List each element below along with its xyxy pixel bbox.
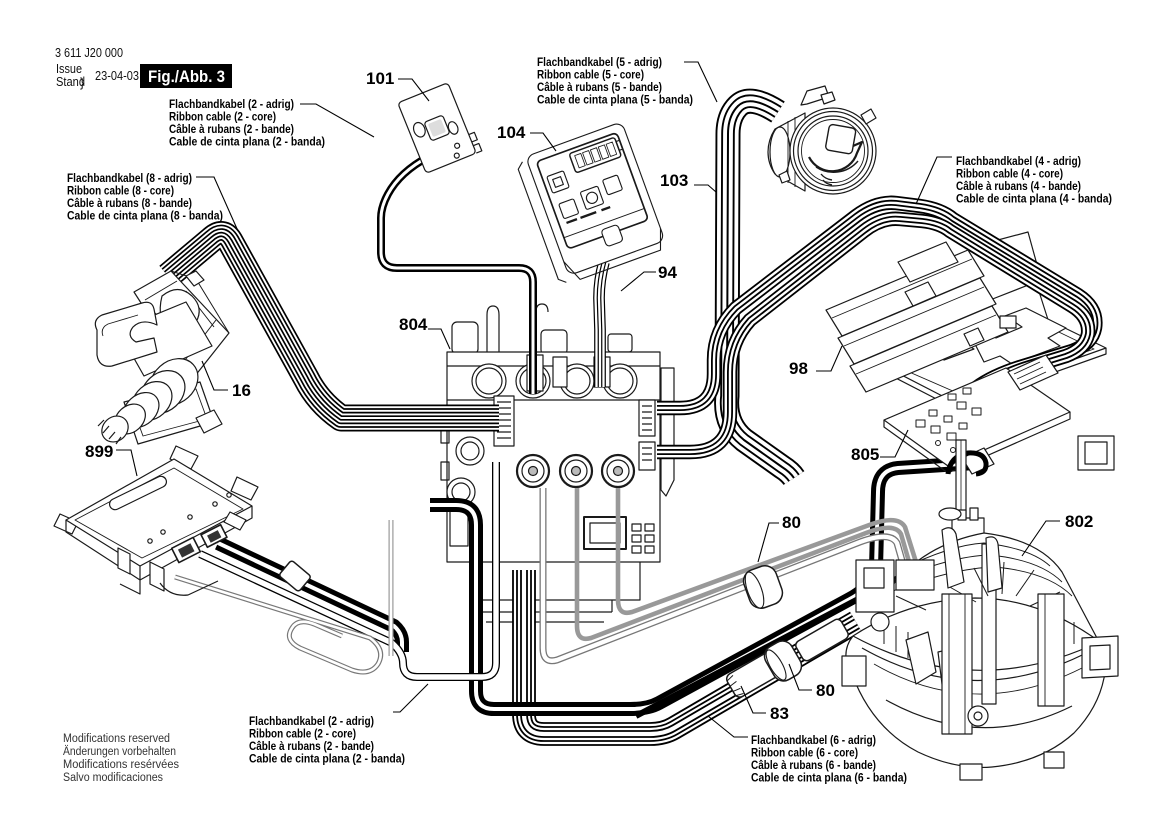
svg-text:Fig./Abb. 3: Fig./Abb. 3 bbox=[148, 68, 225, 86]
svg-text:104: 104 bbox=[497, 123, 526, 142]
svg-text:83: 83 bbox=[770, 704, 789, 723]
svg-text:804: 804 bbox=[399, 315, 428, 334]
svg-text:899: 899 bbox=[85, 442, 113, 461]
svg-text:80: 80 bbox=[816, 681, 835, 700]
svg-text:Cable de cinta plana (2 - band: Cable de cinta plana (2 - banda) bbox=[249, 752, 405, 766]
svg-text:94: 94 bbox=[658, 263, 677, 282]
svg-text:Cable de cinta plana (5 - band: Cable de cinta plana (5 - banda) bbox=[537, 93, 693, 107]
svg-text:Änderungen vorbehalten: Änderungen vorbehalten bbox=[63, 746, 176, 758]
svg-text:Modifications reserved: Modifications reserved bbox=[63, 733, 170, 745]
svg-text:103: 103 bbox=[660, 171, 688, 190]
svg-text:805: 805 bbox=[851, 445, 879, 464]
svg-text:802: 802 bbox=[1065, 512, 1093, 531]
svg-text:Cable de cinta plana (8 - band: Cable de cinta plana (8 - banda) bbox=[67, 209, 223, 223]
svg-text:Cable de cinta plana (2 - band: Cable de cinta plana (2 - banda) bbox=[169, 135, 325, 149]
svg-text:}: } bbox=[80, 75, 85, 90]
svg-text:Salvo modificaciones: Salvo modificaciones bbox=[63, 772, 163, 784]
svg-text:16: 16 bbox=[232, 381, 251, 400]
svg-text:80: 80 bbox=[782, 513, 801, 532]
svg-text:101: 101 bbox=[366, 69, 394, 88]
svg-text:98: 98 bbox=[789, 359, 808, 378]
svg-text:3 611 J20 000: 3 611 J20 000 bbox=[55, 45, 123, 60]
svg-text:Modifications resérvées: Modifications resérvées bbox=[63, 759, 179, 771]
svg-text:Cable de cinta plana (6 - band: Cable de cinta plana (6 - banda) bbox=[751, 771, 907, 785]
svg-text:23-04-03: 23-04-03 bbox=[95, 68, 139, 83]
svg-text:Cable de cinta plana (4 - band: Cable de cinta plana (4 - banda) bbox=[956, 192, 1112, 206]
